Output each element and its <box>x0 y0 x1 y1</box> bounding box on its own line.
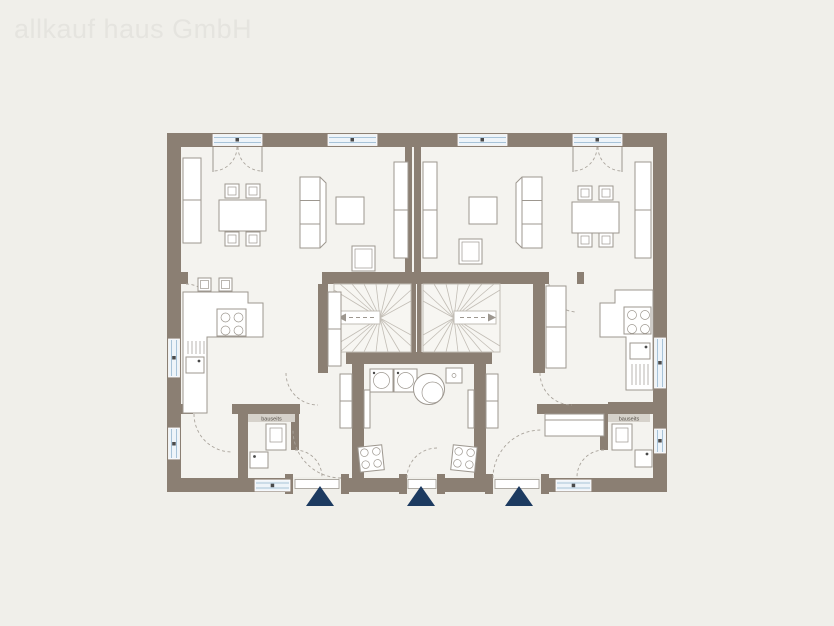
window-icon <box>556 480 591 491</box>
shelf-icon <box>364 390 370 428</box>
heating-unit-icon <box>451 445 477 472</box>
hall-wardrobe-icon <box>486 374 498 428</box>
hall-wardrobe-icon <box>328 292 341 366</box>
window-icon <box>328 135 377 146</box>
bar-stool-icon <box>219 278 232 291</box>
floorplan-page: { "watermark": { "text": "allkauf haus G… <box>0 0 834 626</box>
window-icon <box>655 429 666 453</box>
sofa-icon <box>516 177 542 248</box>
window-icon <box>169 428 180 459</box>
washing-machine-icon <box>370 369 393 392</box>
floorplan-drawing: bauseits bauseits <box>0 0 834 626</box>
heating-unit-icon <box>358 445 384 472</box>
entrance-door-middle <box>408 480 436 489</box>
armchair-icon <box>459 239 482 264</box>
window-icon <box>458 135 507 146</box>
toilet-icon <box>612 424 632 450</box>
side-table-icon <box>336 197 364 224</box>
staircase-right-icon <box>423 284 500 352</box>
bath-label-left: bauseits <box>261 417 282 423</box>
meter-box-icon <box>446 368 462 383</box>
hall-wardrobe-icon <box>340 374 352 428</box>
wardrobe-icon <box>183 158 201 243</box>
washbasin-icon <box>635 450 652 467</box>
sofa-icon <box>300 177 326 248</box>
window-icon <box>655 338 666 388</box>
wardrobe-icon <box>635 162 651 258</box>
shelf-icon <box>468 390 474 428</box>
entrance-door-left <box>295 480 339 489</box>
window-icon <box>255 480 290 491</box>
water-tank-icon <box>414 374 445 405</box>
side-table-icon <box>469 197 497 224</box>
armchair-icon <box>352 246 375 271</box>
toilet-icon <box>266 424 286 450</box>
bath-label-right: bauseits <box>619 417 640 423</box>
bar-stool-icon <box>198 278 211 291</box>
window-icon <box>169 339 180 377</box>
shelf-icon <box>423 162 437 258</box>
hall-wardrobe-icon <box>546 286 566 368</box>
shelf-icon <box>394 162 408 258</box>
washbasin-icon <box>250 452 268 468</box>
staircase-left-icon <box>334 284 411 352</box>
sideboard-icon <box>545 414 604 436</box>
entrance-door-right <box>495 480 539 489</box>
